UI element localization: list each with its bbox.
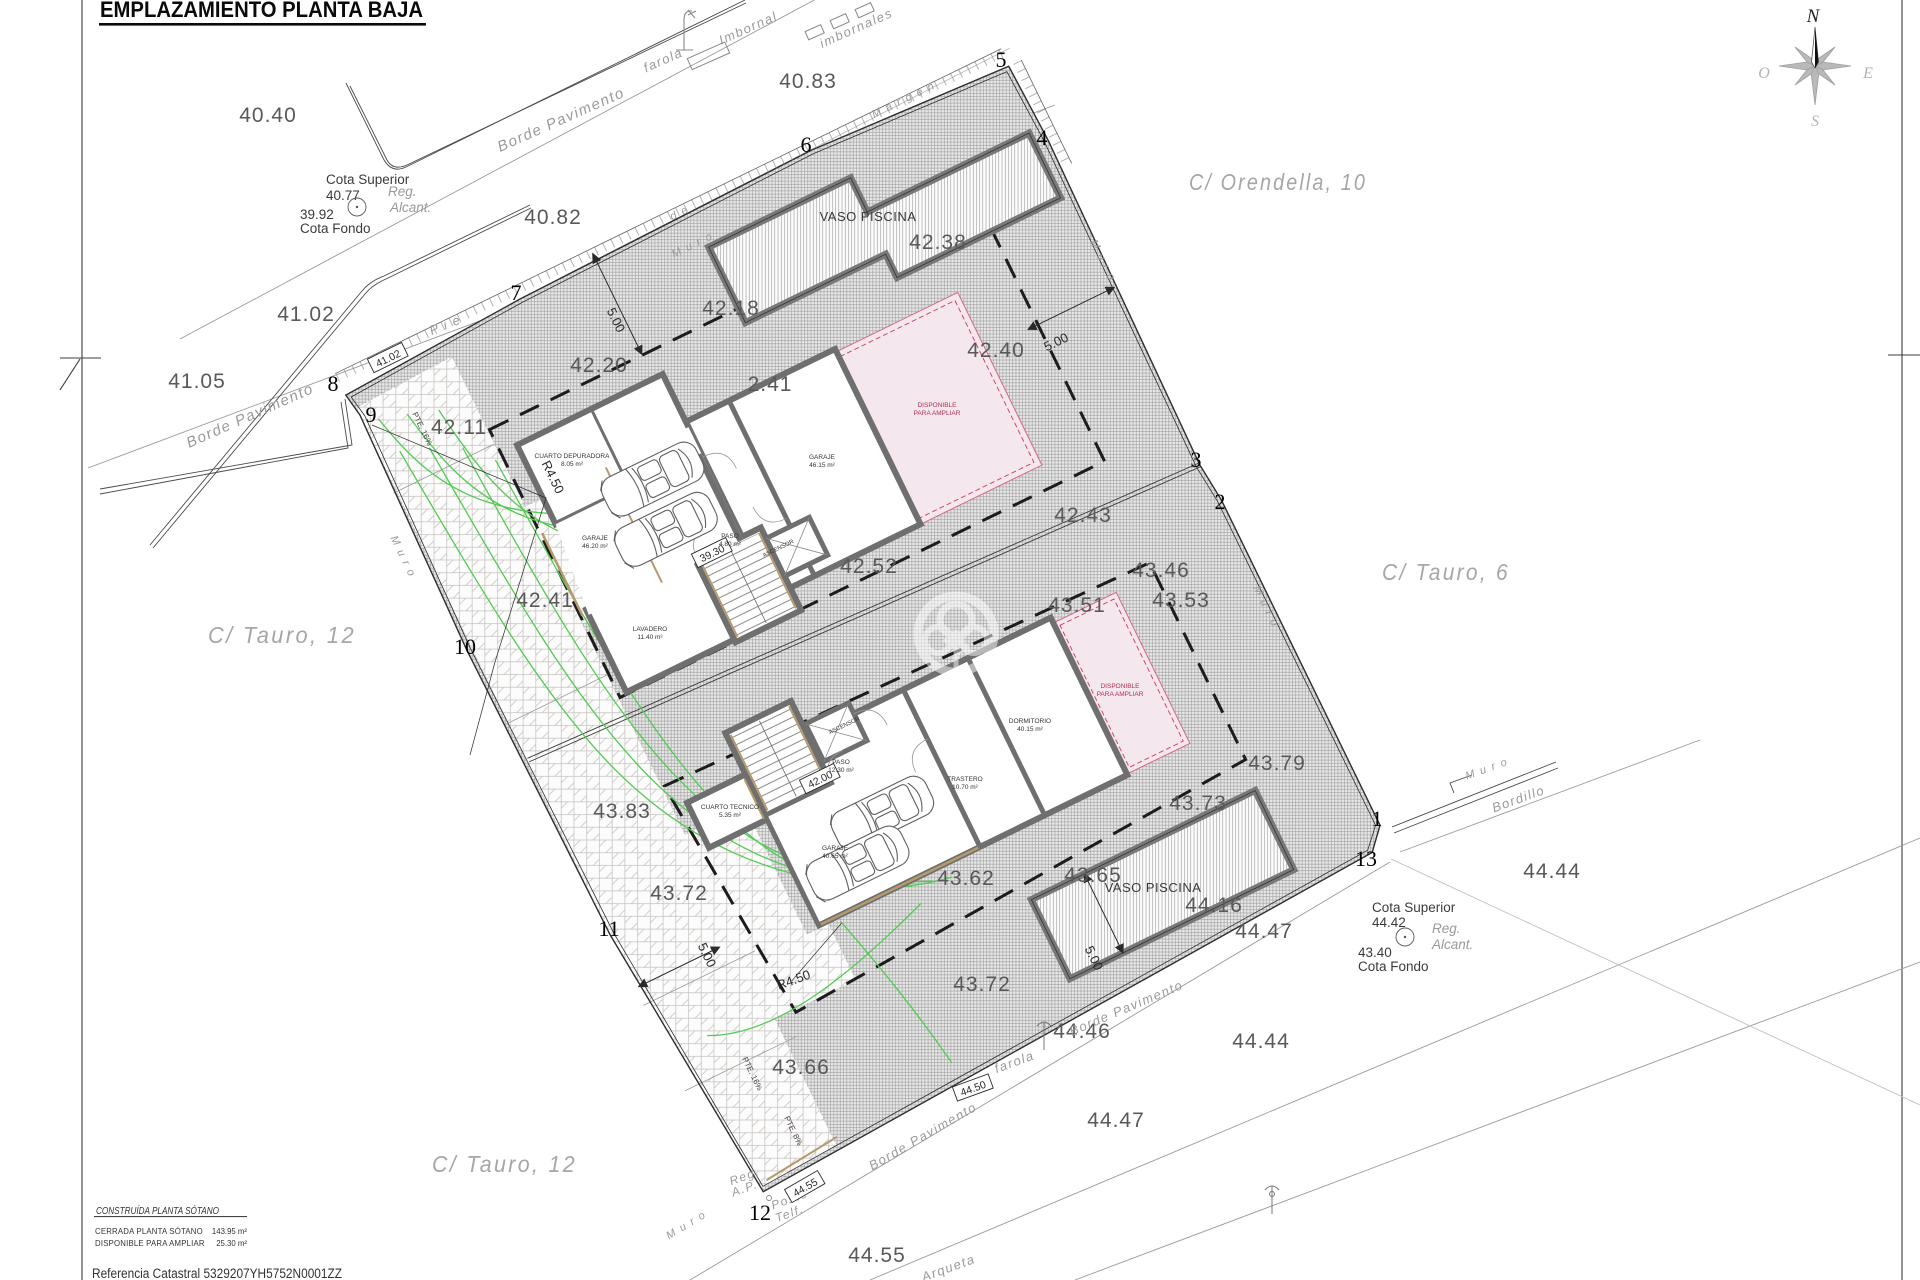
svg-text:12: 12 bbox=[749, 1200, 771, 1225]
svg-text:43.83: 43.83 bbox=[593, 800, 651, 823]
svg-text:44.16: 44.16 bbox=[1185, 894, 1243, 917]
svg-text:2: 2 bbox=[1215, 489, 1226, 514]
svg-text:42.11: 42.11 bbox=[431, 416, 487, 439]
svg-text:E: E bbox=[1862, 65, 1873, 82]
svg-text:8.05 m²: 8.05 m² bbox=[561, 461, 584, 468]
svg-text:5: 5 bbox=[996, 47, 1007, 72]
svg-text:CUARTO TECNICO: CUARTO TECNICO bbox=[701, 804, 759, 811]
svg-text:DORMITORIO: DORMITORIO bbox=[1009, 718, 1051, 725]
svg-text:42.43: 42.43 bbox=[1054, 504, 1112, 527]
svg-text:46.20 m²: 46.20 m² bbox=[582, 543, 608, 550]
svg-text:44.42: 44.42 bbox=[1372, 915, 1406, 930]
svg-text:43.62: 43.62 bbox=[937, 867, 995, 890]
svg-text:Alcant.: Alcant. bbox=[389, 200, 431, 215]
svg-text:11.40 m²: 11.40 m² bbox=[637, 634, 663, 641]
svg-text:C/ Tauro, 12: C/ Tauro, 12 bbox=[432, 1151, 577, 1177]
svg-text:10: 10 bbox=[454, 634, 476, 659]
svg-text:PARA AMPLIAR: PARA AMPLIAR bbox=[1097, 691, 1144, 698]
svg-text:43.40: 43.40 bbox=[1358, 945, 1392, 960]
svg-text:42.41: 42.41 bbox=[516, 589, 574, 612]
svg-text:7: 7 bbox=[511, 280, 522, 305]
svg-text:TRASTERO: TRASTERO bbox=[947, 776, 982, 783]
svg-text:11: 11 bbox=[598, 916, 619, 941]
svg-text:C/ Tauro, 6: C/ Tauro, 6 bbox=[1382, 559, 1510, 585]
svg-text:CUARTO DEPURADORA: CUARTO DEPURADORA bbox=[535, 453, 611, 460]
svg-text:DISPONIBLE: DISPONIBLE bbox=[917, 402, 957, 409]
svg-text:VASO PISCINA: VASO PISCINA bbox=[820, 209, 917, 224]
svg-text:44.44: 44.44 bbox=[1523, 860, 1581, 883]
svg-text:C/ Tauro, 12: C/ Tauro, 12 bbox=[208, 622, 356, 648]
svg-text:44.47: 44.47 bbox=[1087, 1109, 1145, 1132]
svg-text:44.47: 44.47 bbox=[1235, 920, 1293, 943]
svg-text:41.05: 41.05 bbox=[168, 370, 226, 393]
svg-text:40.82: 40.82 bbox=[524, 206, 582, 229]
svg-text:41.02: 41.02 bbox=[277, 303, 335, 326]
svg-text:40.83: 40.83 bbox=[779, 70, 837, 93]
svg-text:40.65 m²: 40.65 m² bbox=[822, 853, 848, 860]
svg-text:43.73: 43.73 bbox=[1169, 792, 1227, 815]
svg-text:43.53: 43.53 bbox=[1152, 589, 1210, 612]
svg-text:143.95 m²: 143.95 m² bbox=[212, 1227, 248, 1236]
svg-text:12.30 m²: 12.30 m² bbox=[828, 767, 854, 774]
svg-text:1: 1 bbox=[1372, 806, 1383, 831]
svg-text:4: 4 bbox=[1037, 125, 1048, 150]
svg-text:CONSTRUÍDA PLANTA SÓTANO: CONSTRUÍDA PLANTA SÓTANO bbox=[96, 1204, 219, 1217]
svg-text:43.46: 43.46 bbox=[1132, 559, 1190, 582]
svg-text:Reg.: Reg. bbox=[1432, 921, 1461, 936]
svg-text:5.35 m²: 5.35 m² bbox=[719, 812, 742, 819]
svg-text:43.51: 43.51 bbox=[1048, 594, 1106, 617]
svg-text:PASO: PASO bbox=[721, 533, 739, 540]
svg-text:CERRADA PLANTA SÓTANO: CERRADA PLANTA SÓTANO bbox=[95, 1227, 203, 1236]
svg-text:GARAJE: GARAJE bbox=[822, 845, 849, 852]
svg-text:42.18: 42.18 bbox=[702, 297, 760, 320]
svg-text:25.30 m²: 25.30 m² bbox=[216, 1239, 247, 1248]
svg-text:Alcant.: Alcant. bbox=[1431, 937, 1473, 952]
svg-text:O: O bbox=[1758, 65, 1770, 82]
svg-text:46.15 m²: 46.15 m² bbox=[809, 462, 835, 469]
svg-text:13: 13 bbox=[1355, 846, 1377, 871]
svg-text:PASO: PASO bbox=[832, 759, 850, 766]
svg-text:4.80 m²: 4.80 m² bbox=[719, 541, 742, 548]
svg-text:S: S bbox=[1811, 113, 1819, 130]
svg-text:44.44: 44.44 bbox=[1232, 1030, 1290, 1053]
svg-text:3: 3 bbox=[1191, 447, 1202, 472]
svg-text:42.20: 42.20 bbox=[570, 354, 628, 377]
svg-text:GARAJE: GARAJE bbox=[809, 454, 836, 461]
svg-text:DISPONIBLE: DISPONIBLE bbox=[1100, 683, 1140, 690]
svg-text:42.38: 42.38 bbox=[909, 231, 967, 254]
svg-text:EMPLAZAMIENTO PLANTA BAJA: EMPLAZAMIENTO PLANTA BAJA bbox=[100, 0, 423, 22]
svg-text:10.70 m²: 10.70 m² bbox=[952, 784, 978, 791]
svg-text:8: 8 bbox=[328, 371, 339, 396]
svg-text:43.72: 43.72 bbox=[650, 882, 708, 905]
svg-text:PARA AMPLIAR: PARA AMPLIAR bbox=[914, 410, 961, 417]
svg-text:9: 9 bbox=[366, 402, 377, 427]
svg-text:VASO PISCINA: VASO PISCINA bbox=[1105, 880, 1202, 895]
svg-text:43.72: 43.72 bbox=[953, 973, 1011, 996]
svg-text:6: 6 bbox=[801, 132, 812, 157]
svg-text:39.92: 39.92 bbox=[300, 207, 334, 222]
svg-text:Referencia Catastral 5329207: Referencia Catastral 5329207YH5752N0001Z… bbox=[92, 1266, 342, 1280]
svg-text:43.79: 43.79 bbox=[1248, 752, 1306, 775]
svg-text:Cota Superior: Cota Superior bbox=[1372, 900, 1456, 915]
svg-text:Reg.: Reg. bbox=[388, 184, 417, 199]
svg-text:44.55: 44.55 bbox=[848, 1244, 906, 1267]
svg-text:DISPONIBLE PARA AMPLIAR: DISPONIBLE PARA AMPLIAR bbox=[95, 1239, 205, 1248]
svg-text:42.40: 42.40 bbox=[967, 339, 1025, 362]
svg-text:N: N bbox=[1806, 6, 1821, 27]
svg-text:LAVADERO: LAVADERO bbox=[633, 626, 667, 633]
svg-text:40.15 m²: 40.15 m² bbox=[1017, 726, 1043, 733]
svg-text:GARAJE: GARAJE bbox=[582, 535, 609, 542]
svg-text:Cota Fondo: Cota Fondo bbox=[1358, 959, 1429, 974]
svg-text:40.40: 40.40 bbox=[239, 104, 297, 127]
svg-text:40.77: 40.77 bbox=[326, 188, 360, 203]
svg-text:Cota Fondo: Cota Fondo bbox=[300, 221, 371, 236]
svg-text:42.52: 42.52 bbox=[840, 555, 898, 578]
svg-text:43.66: 43.66 bbox=[772, 1056, 830, 1079]
svg-text:2.41: 2.41 bbox=[748, 373, 793, 396]
svg-text:C/ Orendella, 10: C/ Orendella, 10 bbox=[1189, 169, 1367, 195]
